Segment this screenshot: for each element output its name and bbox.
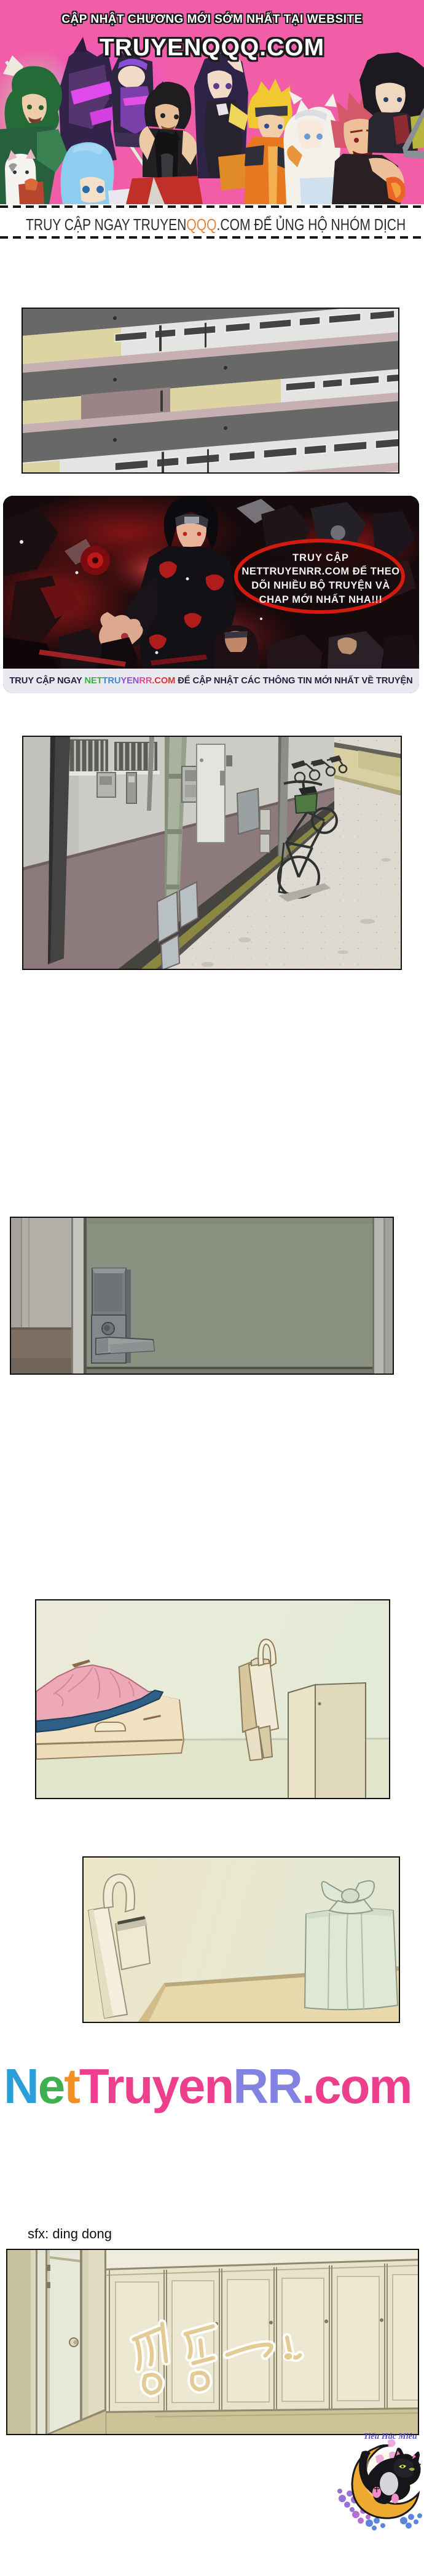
svg-text:TRUY CẬP: TRUY CẬP bbox=[292, 552, 349, 563]
svg-text:Tiểu Hắc Miêu: Tiểu Hắc Miêu bbox=[363, 2432, 417, 2441]
svg-text:CHAP MỚI NHẤT NHA!!!: CHAP MỚI NHẤT NHA!!! bbox=[259, 594, 383, 605]
svg-text:DÕI NHIỀU BỘ TRUYỆN VÀ: DÕI NHIỀU BỘ TRUYỆN VÀ bbox=[251, 579, 390, 591]
svg-text:NETTRUYENRR.COM ĐỂ THEO: NETTRUYENRR.COM ĐỂ THEO bbox=[241, 565, 399, 577]
